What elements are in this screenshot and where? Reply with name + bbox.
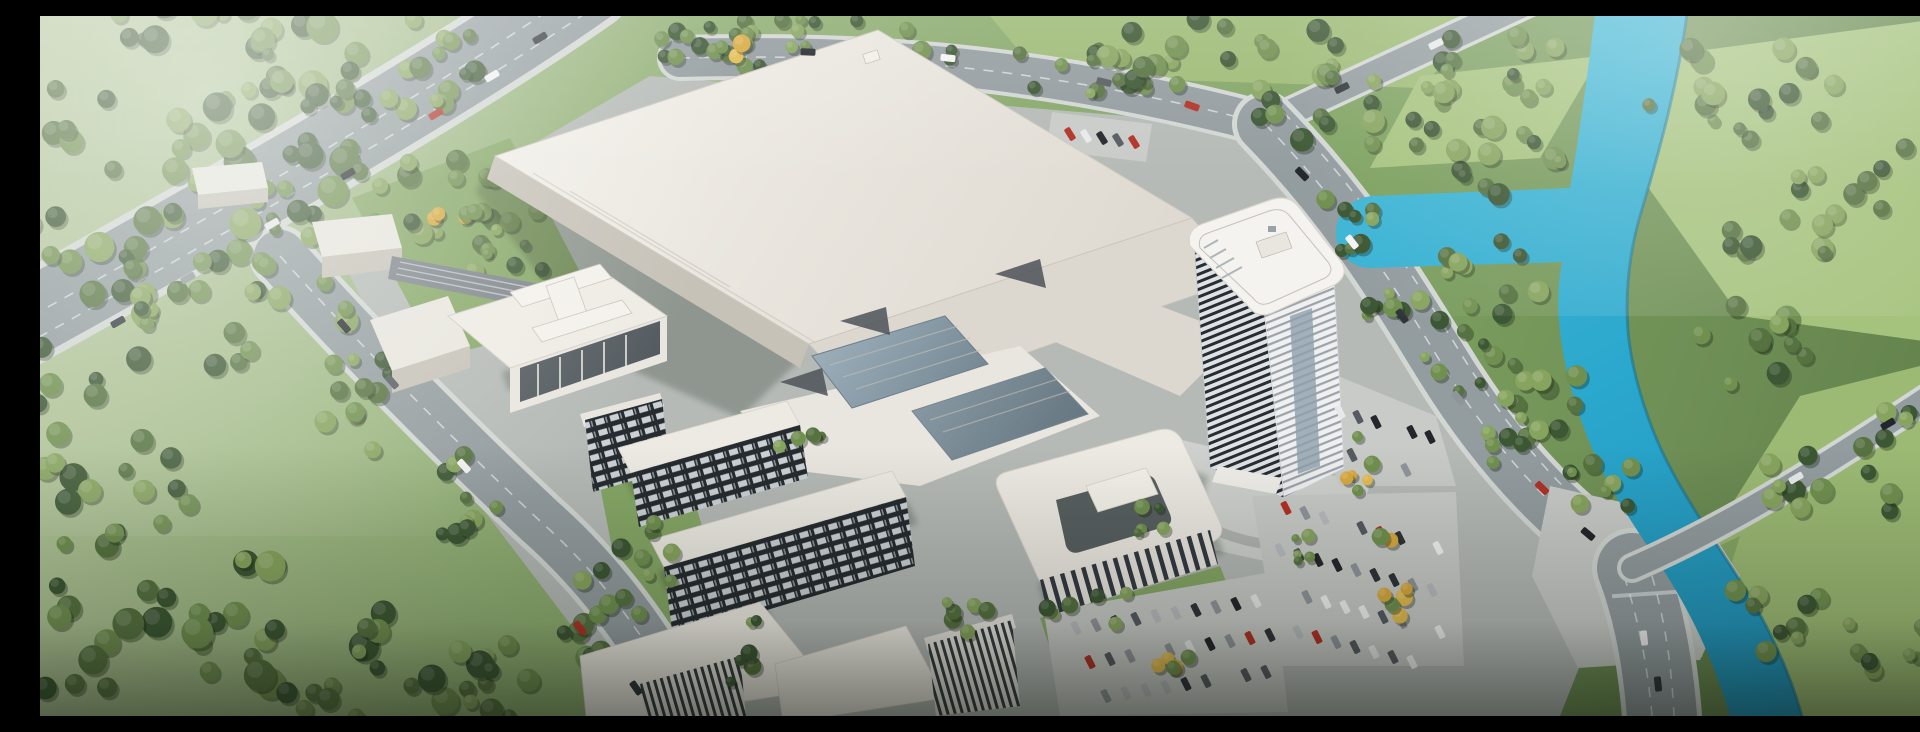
aerial-campus-rendering <box>40 16 1920 716</box>
scene-canvas <box>40 16 1920 716</box>
bottom-vignette <box>40 446 1920 716</box>
